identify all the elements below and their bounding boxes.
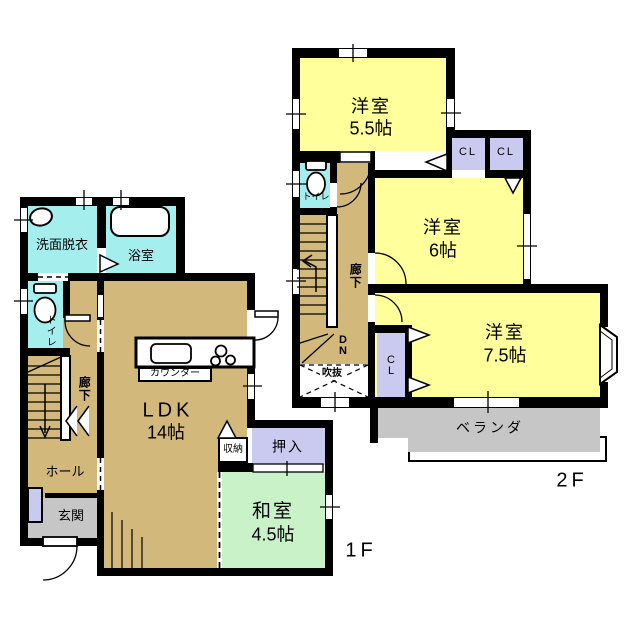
bath-folding-door-icon bbox=[100, 255, 118, 272]
storage-door-marker bbox=[218, 421, 236, 438]
veranda-label: ベランダ bbox=[456, 421, 524, 436]
floor-tag-1f: 1F bbox=[345, 541, 376, 562]
bay-window bbox=[600, 325, 617, 384]
bedroom-b-door-arc bbox=[375, 253, 406, 284]
room-label-oshiire: 押入 bbox=[272, 440, 304, 455]
room-label-hallway-2f: 廊下 bbox=[349, 263, 362, 289]
front-door-arc bbox=[43, 537, 77, 580]
room-size-yoshitsu-b: 6帖 bbox=[429, 242, 457, 261]
room-label-toilet-1f: トイレ bbox=[44, 315, 55, 348]
void-label: 吹抜 bbox=[320, 369, 344, 380]
ldk-floor-slats bbox=[112, 512, 142, 568]
floorplan-canvas: 収納 カウンター bbox=[0, 0, 640, 640]
floor-tag-2f: 2F bbox=[556, 471, 587, 492]
room-size-yoshitsu-c: 7.5帖 bbox=[483, 347, 526, 366]
bedroom-a-door-arc bbox=[340, 152, 371, 194]
room-label-toilet-2f: トイレ bbox=[302, 192, 329, 201]
ldk-side-door-arc bbox=[255, 311, 278, 340]
room-label-senmen: 洗面脱衣 bbox=[36, 238, 88, 252]
room-label-genkan: 玄関 bbox=[58, 509, 84, 523]
washitsu-partition-dashed bbox=[217, 472, 222, 568]
closet-label-b: CL bbox=[497, 147, 515, 159]
room-size-ldk: 14帖 bbox=[147, 424, 185, 443]
room-label-washitsu: 和室 bbox=[252, 502, 294, 522]
toilet-door-arc-2f bbox=[337, 183, 361, 207]
bedroom-c-door-arc bbox=[375, 295, 402, 322]
plan-annotations bbox=[0, 0, 640, 640]
closet-label-c: CL bbox=[385, 355, 398, 377]
room-label-ldk: LDK bbox=[143, 401, 194, 422]
sink-icon bbox=[28, 206, 53, 227]
room-label-hallway-1f: 廊下 bbox=[78, 376, 91, 402]
stairs-1f bbox=[28, 356, 70, 440]
room-label-yoshitsu-b: 洋室 bbox=[423, 219, 463, 238]
bathtub-icon bbox=[111, 207, 169, 236]
room-label-bath: 浴室 bbox=[128, 249, 154, 263]
kitchen-counter-icon bbox=[136, 338, 254, 367]
stairs-2f bbox=[297, 215, 337, 363]
room-label-yoshitsu-a: 洋室 bbox=[351, 98, 391, 117]
oshiire-sliding-door bbox=[253, 461, 323, 476]
room-size-yoshitsu-a: 5.5帖 bbox=[349, 120, 392, 139]
room-size-washitsu: 4.5帖 bbox=[251, 526, 294, 545]
room-label-hall: ホール bbox=[45, 465, 84, 479]
toilet-door-arc-1f bbox=[65, 315, 90, 346]
room-label-yoshitsu-c: 洋室 bbox=[485, 324, 525, 343]
closet-label-a: CL bbox=[459, 147, 477, 159]
stairs-dn-label: DN bbox=[337, 335, 350, 357]
